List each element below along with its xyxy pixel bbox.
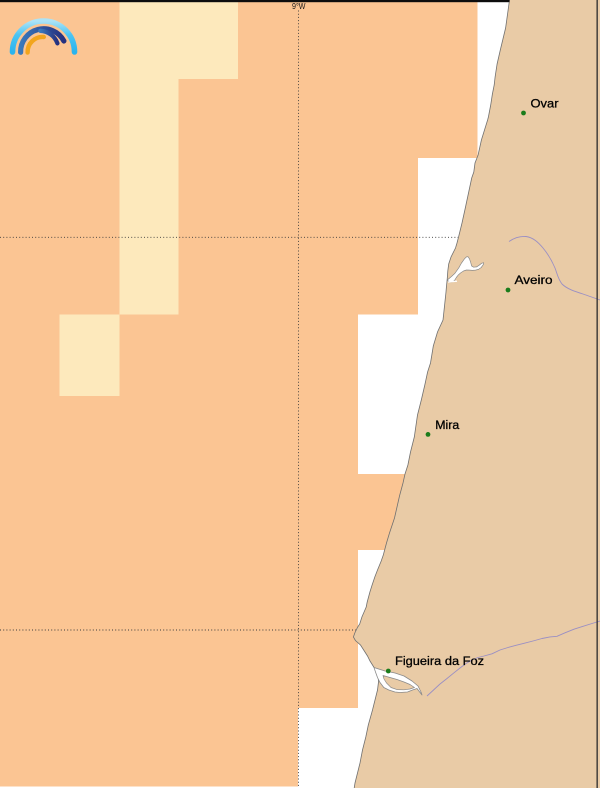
svg-text:Mira: Mira	[435, 418, 459, 432]
svg-text:Ovar: Ovar	[531, 97, 559, 111]
svg-text:Aveiro: Aveiro	[515, 273, 553, 287]
svg-text:Figueira da Foz: Figueira da Foz	[395, 654, 484, 668]
svg-text:9°W: 9°W	[292, 1, 306, 11]
